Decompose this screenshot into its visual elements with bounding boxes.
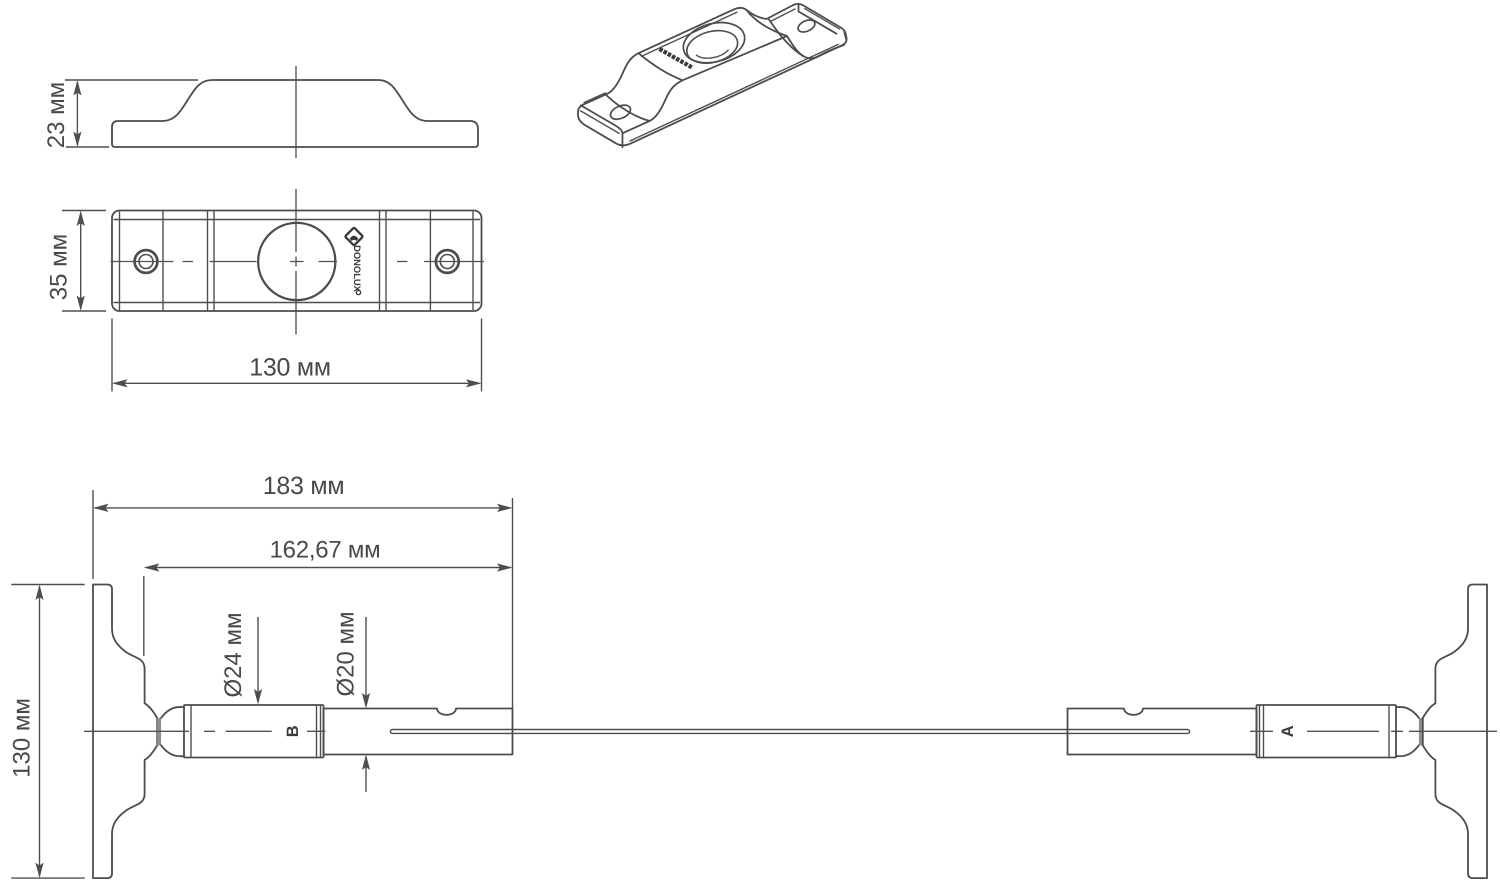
svg-text:35 мм: 35 мм (46, 234, 73, 300)
svg-text:23 мм: 23 мм (43, 82, 70, 148)
svg-text:A: A (1279, 725, 1297, 737)
svg-text:DONOLUX: DONOLUX (352, 245, 363, 293)
svg-text:B: B (284, 725, 302, 737)
svg-text:Ø24 мм: Ø24 мм (220, 612, 247, 697)
svg-text:130 мм: 130 мм (249, 354, 331, 382)
svg-text:Ø20 мм: Ø20 мм (333, 611, 360, 696)
svg-text:162,67 мм: 162,67 мм (270, 537, 381, 564)
svg-text:183 мм: 183 мм (263, 472, 345, 500)
svg-text:130 мм: 130 мм (8, 698, 35, 778)
